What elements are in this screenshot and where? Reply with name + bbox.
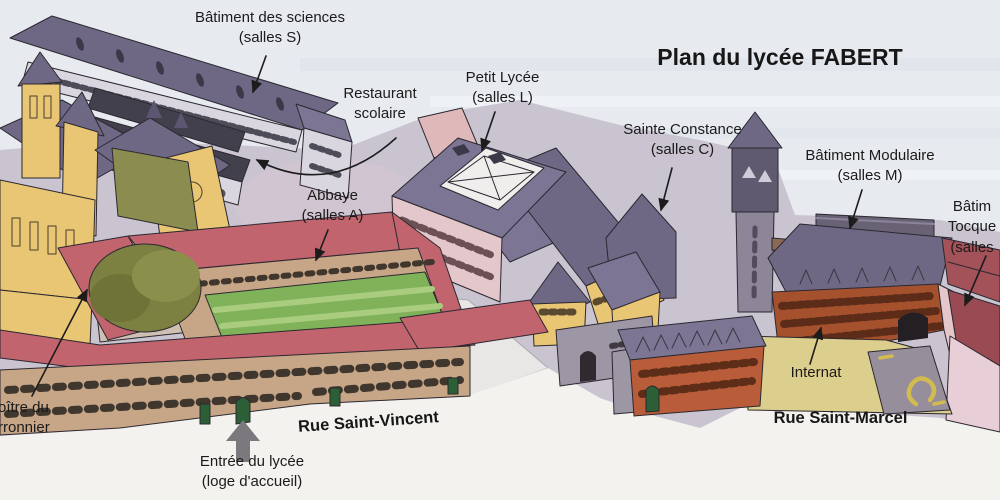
label-petit-lycee: Petit Lycée (salles L) <box>445 68 560 109</box>
page-title: Plan du lycée FABERT <box>640 44 920 71</box>
orange-range-building <box>612 316 766 416</box>
label-batiment-modulaire: Bâtiment Modulaire (salles M) <box>794 146 946 187</box>
label-abbaye: Abbaye (salles A) <box>275 186 390 227</box>
label-sciences: Bâtiment des sciences (salles S) <box>175 8 365 49</box>
label-batiment-tocqueville: Bâtim Tocque (salles <box>944 197 1000 258</box>
street-rue-saint-marcel: Rue Saint-Marcel <box>768 409 913 428</box>
label-entree: Entrée du lycée (loge d'accueil) <box>172 452 332 493</box>
label-sainte-constance: Sainte Constance (salles C) <box>610 120 755 161</box>
label-cloitre-du-marronnier: oître du rronnier <box>0 398 108 439</box>
campus-map: Plan du lycée FABERT Bâtiment des scienc… <box>0 0 1000 500</box>
label-restaurant: Restaurant scolaire <box>328 84 432 125</box>
label-internat: Internat <box>778 363 854 383</box>
